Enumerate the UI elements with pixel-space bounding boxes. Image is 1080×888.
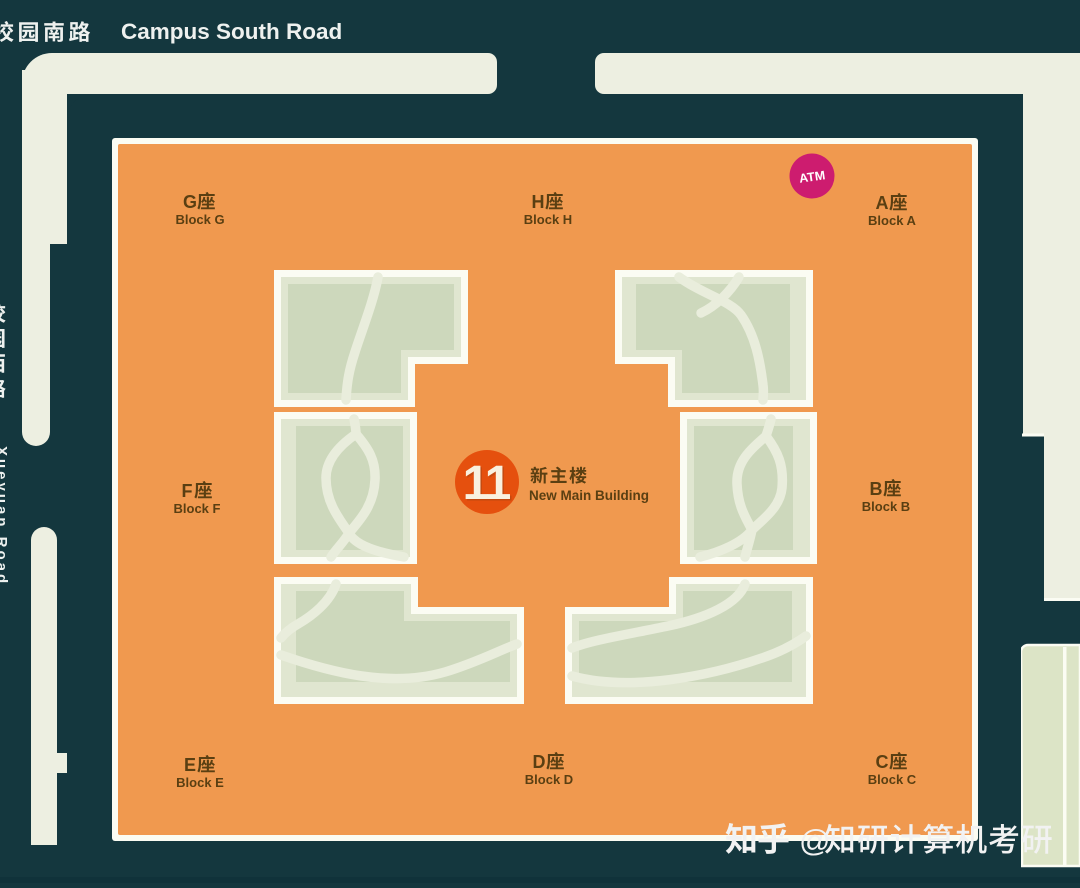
- svg-text:F: F: [182, 481, 193, 501]
- svg-text:Xueyuan Road: Xueyuan Road: [0, 446, 10, 586]
- svg-text:Campus South Road: Campus South Road: [121, 19, 342, 44]
- svg-text:B: B: [870, 479, 883, 499]
- svg-text:Block E: Block E: [176, 775, 224, 790]
- svg-text:@: @: [799, 823, 830, 858]
- svg-text:C: C: [876, 752, 889, 772]
- svg-text:Block C: Block C: [868, 772, 917, 787]
- svg-text:11: 11: [463, 457, 511, 510]
- svg-text:D: D: [533, 752, 546, 772]
- svg-text:Block G: Block G: [175, 212, 224, 227]
- svg-text:A: A: [876, 193, 889, 213]
- svg-text:New Main Building: New Main Building: [529, 488, 649, 503]
- svg-text:Block B: Block B: [862, 499, 910, 514]
- svg-text:E: E: [184, 755, 196, 775]
- svg-text:H: H: [532, 192, 545, 212]
- svg-text:Block F: Block F: [174, 501, 221, 516]
- svg-text:G: G: [183, 192, 197, 212]
- svg-text:Block H: Block H: [524, 212, 572, 227]
- svg-text:Block D: Block D: [525, 772, 573, 787]
- svg-text:Block A: Block A: [868, 213, 917, 228]
